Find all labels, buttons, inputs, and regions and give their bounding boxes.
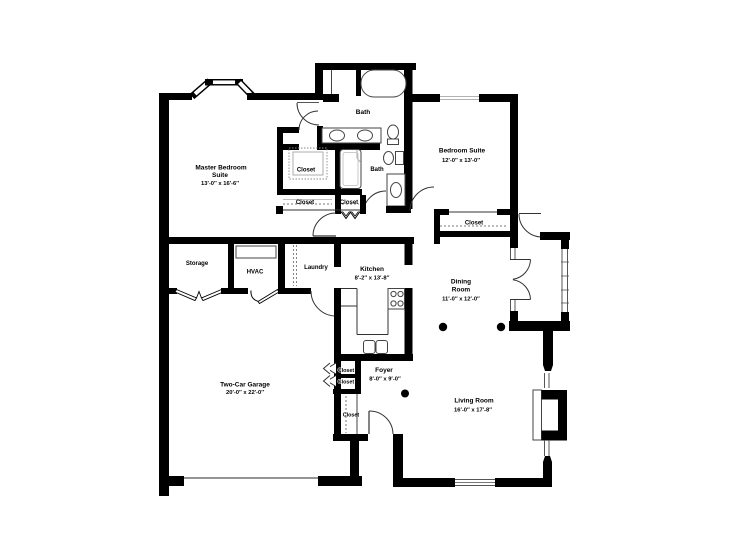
svg-text:Bath: Bath [370,167,384,173]
svg-text:Laundry: Laundry [304,265,328,271]
svg-text:Master Bedroom: Master Bedroom [195,165,247,172]
svg-text:Two-Car Garage: Two-Car Garage [220,382,270,389]
svg-text:8′-2″ x 13′-8″: 8′-2″ x 13′-8″ [355,276,390,282]
svg-text:Storage: Storage [186,261,209,267]
svg-text:Closet: Closet [296,200,314,206]
svg-text:13′-0″ x 16′-6″: 13′-0″ x 16′-6″ [201,181,239,187]
svg-text:20′-0″ x 22′-0″: 20′-0″ x 22′-0″ [226,390,264,396]
svg-text:16′-0″ x 17′-8″: 16′-0″ x 17′-8″ [454,408,492,414]
svg-text:Living Room: Living Room [454,398,494,405]
svg-text:Closet: Closet [465,221,483,227]
svg-text:Closet: Closet [340,200,358,206]
svg-text:Kitchen: Kitchen [360,266,384,273]
svg-text:Bedroom Suite: Bedroom Suite [439,148,486,155]
svg-text:Closet: Closet [338,380,355,386]
svg-text:12′-0″ x 13′-0″: 12′-0″ x 13′-0″ [442,158,480,164]
svg-text:Closet: Closet [343,413,360,419]
svg-text:Room: Room [452,287,471,294]
svg-text:Closet: Closet [338,368,355,374]
svg-text:Foyer: Foyer [375,367,393,374]
svg-text:HVAC: HVAC [247,270,264,276]
svg-text:Dining: Dining [451,279,471,286]
svg-text:11′-0″ x 12′-0″: 11′-0″ x 12′-0″ [442,297,480,303]
svg-text:8′-0″ x 9′-0″: 8′-0″ x 9′-0″ [369,377,401,383]
svg-text:Closet: Closet [297,168,315,174]
svg-text:Bath: Bath [356,109,370,116]
svg-text:Suite: Suite [212,172,228,179]
